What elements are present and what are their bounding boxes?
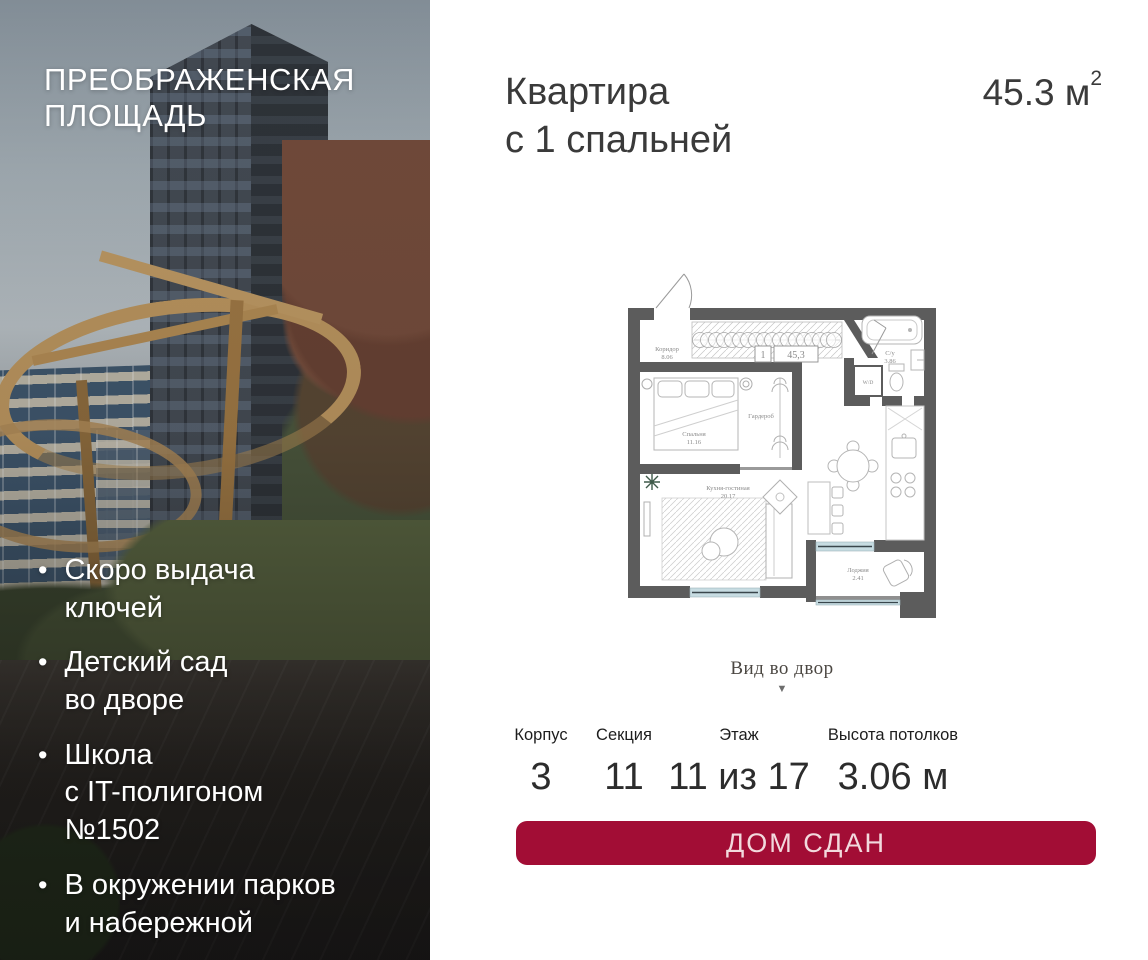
feature-line: В окружении парков — [64, 867, 335, 905]
svg-text:С/у: С/у — [885, 350, 895, 357]
feature-line: и набережной — [64, 905, 335, 943]
svg-text:11.16: 11.16 — [687, 439, 702, 446]
plan-entry-gap — [654, 308, 690, 320]
spec-section: Секция 11 — [588, 726, 660, 799]
project-name-line1: ПРЕОБРАЖЕНСКАЯ — [44, 62, 355, 98]
spec-value: 3 — [494, 756, 588, 799]
project-name-line2: ПЛОЩАДЬ — [44, 98, 355, 134]
svg-text:Кухня-гостиная: Кухня-гостиная — [706, 485, 749, 492]
svg-text:20.17: 20.17 — [721, 493, 736, 500]
project-features: • Скоро выдача ключей • Детский сад во д… — [38, 552, 336, 959]
plan-door-gap — [870, 396, 882, 406]
svg-text:1: 1 — [761, 350, 766, 361]
svg-text:45,3: 45,3 — [787, 350, 805, 361]
spec-building: Корпус 3 — [494, 726, 588, 799]
feature-line: ключей — [64, 590, 254, 628]
spec-ceiling-height: Высота потолков 3.06 м — [818, 726, 968, 799]
svg-text:Лоджия: Лоджия — [847, 567, 869, 574]
spec-label: Этаж — [660, 726, 818, 745]
feature-item: • Школа с IT-полигоном №1502 — [38, 737, 336, 850]
plant-icon — [644, 474, 660, 490]
spec-floor: Этаж 11 из 17 — [660, 726, 818, 799]
spec-value: 11 из 17 — [660, 756, 818, 799]
svg-text:8.06: 8.06 — [661, 354, 673, 361]
feature-line: №1502 — [64, 812, 263, 850]
project-photo: ПРЕОБРАЖЕНСКАЯ ПЛОЩАДЬ • Скоро выдача кл… — [0, 0, 430, 960]
spec-label: Корпус — [494, 726, 588, 745]
floor-plan: 1 45,3 — [628, 266, 936, 626]
bullet-icon: • — [38, 644, 47, 719]
area-unit: м — [1055, 72, 1091, 113]
svg-text:Коридор: Коридор — [655, 346, 679, 353]
feature-line: Детский сад — [64, 644, 227, 682]
view-label: Вид во двор — [628, 658, 936, 680]
specs-row: Корпус 3 Секция 11 Этаж 11 из 17 Высота … — [494, 726, 968, 799]
feature-line: с IT-полигоном — [64, 774, 263, 812]
area-sup: 2 — [1090, 67, 1102, 90]
spec-label: Высота потолков — [818, 726, 968, 745]
svg-text:Гардероб: Гардероб — [748, 413, 774, 420]
listing-card: ПРЕОБРАЖЕНСКАЯ ПЛОЩАДЬ • Скоро выдача кл… — [0, 0, 1148, 960]
apartment-title: Квартира с 1 спальней — [505, 68, 732, 165]
area-value: 45.3 — [983, 72, 1055, 113]
feature-item: • В окружении парков и набережной — [38, 867, 336, 942]
feature-line: Скоро выдача — [64, 552, 254, 590]
svg-text:2.41: 2.41 — [852, 575, 863, 582]
plan-sliding-door — [740, 467, 792, 470]
bullet-icon: • — [38, 867, 47, 942]
plan-entry-door — [656, 274, 692, 308]
svg-text:3.86: 3.86 — [884, 358, 896, 365]
svg-text:Спальня: Спальня — [682, 431, 705, 438]
feature-line: во дворе — [64, 682, 227, 720]
plan-door-gap-2 — [902, 396, 914, 406]
feature-text: В окружении парков и набережной — [64, 867, 335, 942]
bullet-icon: • — [38, 737, 47, 850]
plan-unit-label: 1 45,3 — [755, 346, 818, 362]
feature-item: • Скоро выдача ключей — [38, 552, 336, 627]
spec-label: Секция — [588, 726, 660, 745]
feature-text: Школа с IT-полигоном №1502 — [64, 737, 263, 850]
spec-value: 11 — [588, 756, 660, 799]
project-name: ПРЕОБРАЖЕНСКАЯ ПЛОЩАДЬ — [44, 62, 355, 135]
feature-item: • Детский сад во дворе — [38, 644, 336, 719]
spec-value: 3.06 м — [818, 756, 968, 799]
house-delivered-button[interactable]: ДОМ СДАН — [516, 821, 1096, 865]
apartment-title-line2: с 1 спальней — [505, 116, 732, 164]
view-arrow-icon: ▼ — [628, 683, 936, 695]
feature-text: Скоро выдача ключей — [64, 552, 254, 627]
apartment-title-line1: Квартира — [505, 68, 732, 116]
svg-text:W/D: W/D — [863, 380, 874, 386]
apartment-area: 45.3 м2 — [940, 72, 1102, 114]
bullet-icon: • — [38, 552, 47, 627]
feature-text: Детский сад во дворе — [64, 644, 227, 719]
feature-line: Школа — [64, 737, 263, 775]
